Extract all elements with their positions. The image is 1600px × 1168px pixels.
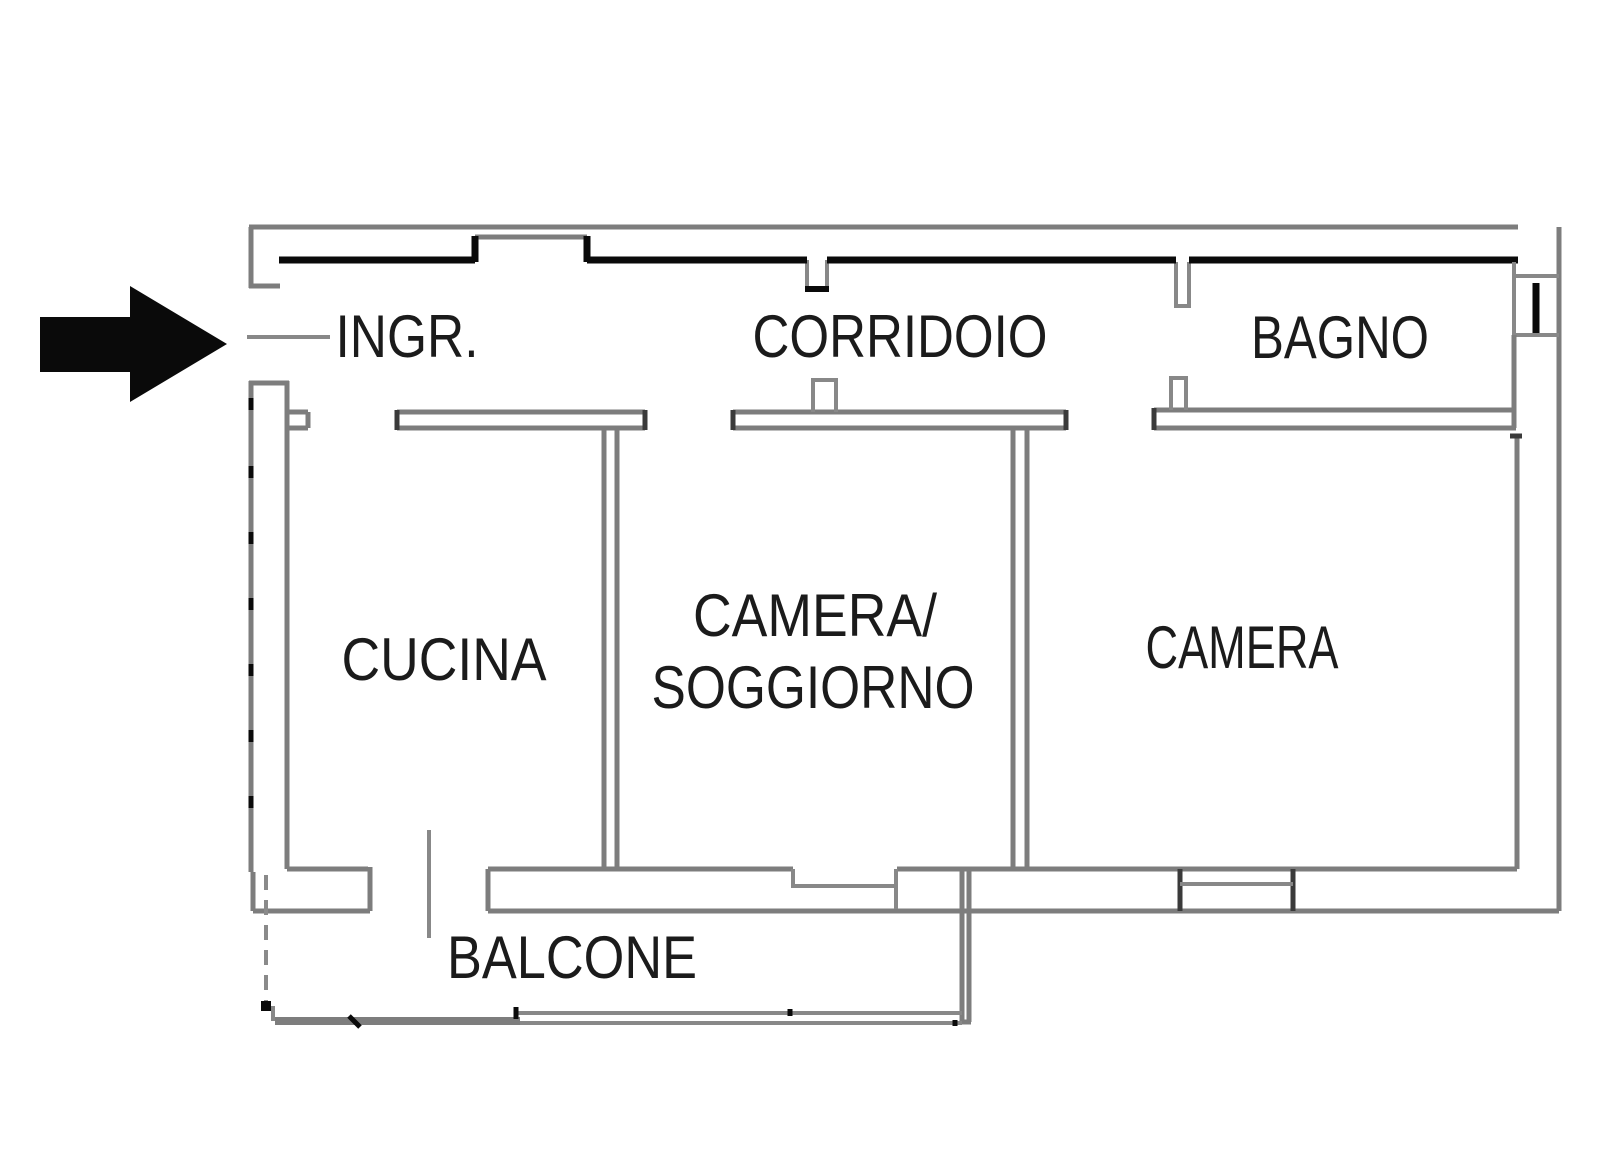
balcony-boundary-end-mark <box>261 1001 271 1011</box>
label-corridoio: CORRIDOIO <box>753 303 1048 370</box>
floor-plan-drawing: INGR. CORRIDOIO BAGNO CUCINA CAMERA/ SOG… <box>0 0 1600 1168</box>
camera-window-ticks <box>1180 869 1293 911</box>
label-camera-soggiorno-line2: SOGGIORNO <box>652 654 975 721</box>
floor-plan-page: INGR. CORRIDOIO BAGNO CUCINA CAMERA/ SOG… <box>0 0 1600 1168</box>
inner-top-wall <box>279 236 1518 262</box>
label-camera-soggiorno-line1: CAMERA/ <box>693 582 937 649</box>
label-cucina: CUCINA <box>342 626 547 693</box>
label-ingresso: INGR. <box>336 303 479 370</box>
label-bagno: BAGNO <box>1251 304 1429 371</box>
entrance-arrow-icon <box>40 286 227 402</box>
label-balcone: BALCONE <box>447 924 697 991</box>
camera-window <box>1180 869 1293 911</box>
bagno-window <box>1512 262 1559 411</box>
soggiorno-balcony-door-jambs <box>793 869 896 909</box>
label-camera: CAMERA <box>1146 614 1339 681</box>
soggiorno-balcony-door <box>793 869 896 909</box>
